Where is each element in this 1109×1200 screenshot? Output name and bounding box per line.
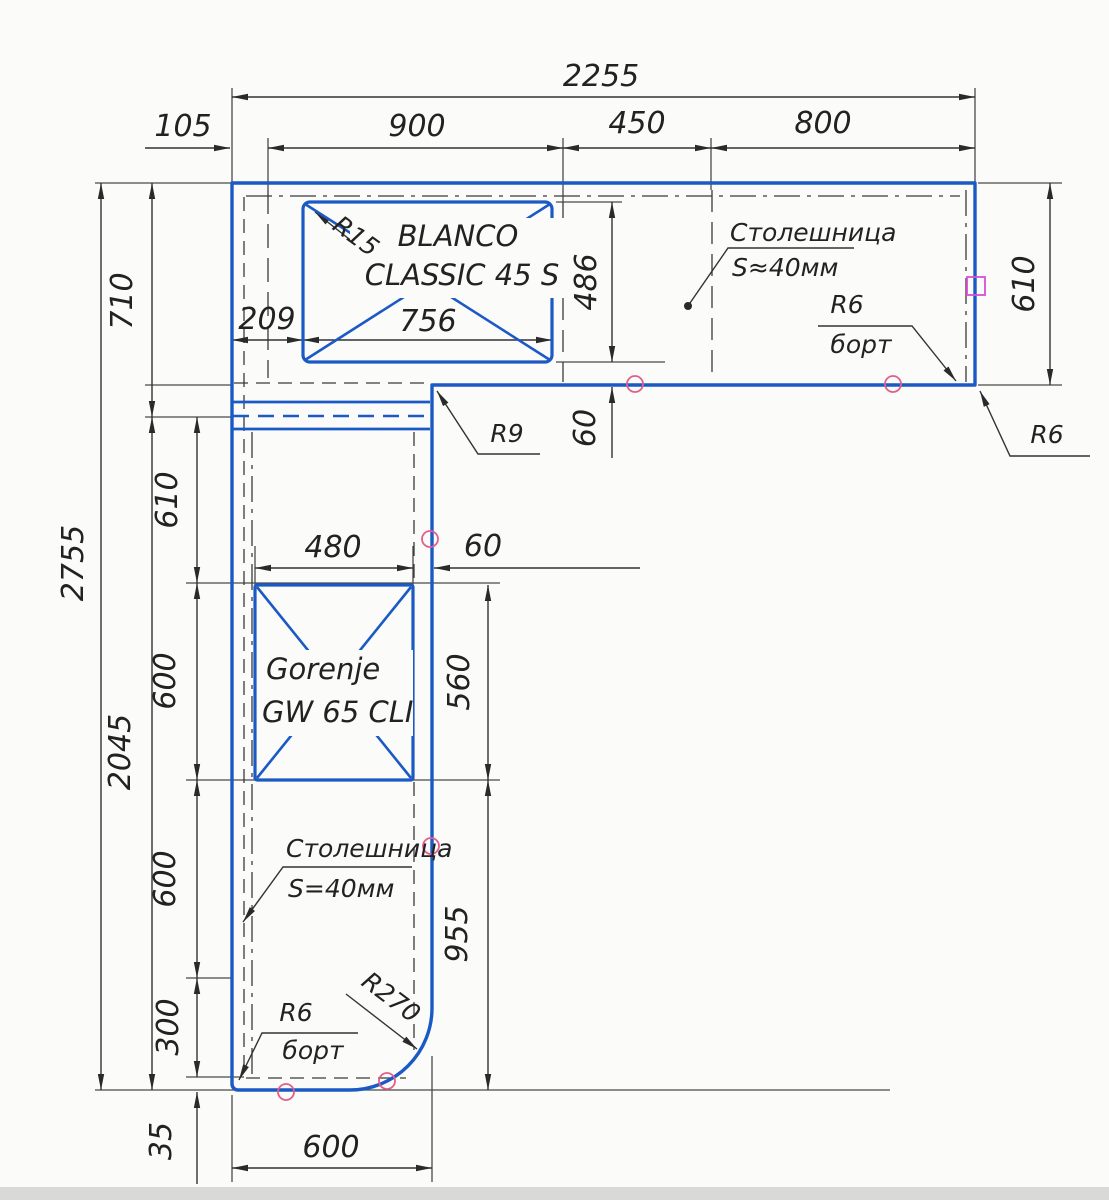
cooktop-brand: Gorenje xyxy=(266,652,380,686)
label-bort-top: борт xyxy=(830,330,893,359)
dim-right-depth: 610 xyxy=(1007,255,1042,312)
dim-cooktop-side-gap: 60 xyxy=(464,529,502,564)
label-bort-bottom: борт xyxy=(282,1036,345,1065)
dim-left-upper: 710 xyxy=(105,272,140,329)
dim-left-610: 610 xyxy=(150,471,185,528)
dim-left-600a: 600 xyxy=(148,652,183,709)
label-r6-top: R6 xyxy=(830,290,863,319)
dim-cooktop-depth: 560 xyxy=(442,653,477,710)
dim-left-600b: 600 xyxy=(148,850,183,907)
dim-left-overall: 2755 xyxy=(56,525,91,601)
label-r9: R9 xyxy=(490,419,523,448)
dim-leg-front-length: 955 xyxy=(440,905,475,962)
sink-brand: BLANCO xyxy=(398,219,519,253)
dim-top-800: 800 xyxy=(794,106,851,141)
dim-sink-width: 756 xyxy=(399,304,456,339)
scanned-drawing-page: 2255 105 900 450 800 2755 710 2045 610 6… xyxy=(0,0,1109,1200)
dim-bottom-width: 600 xyxy=(302,1130,359,1165)
dim-top-offset: 105 xyxy=(154,109,211,144)
dim-left-300: 300 xyxy=(151,998,186,1055)
scan-edge-shadow xyxy=(0,1187,1109,1200)
dim-cooktop-width: 480 xyxy=(304,530,361,565)
label-worktop-top-2: S≈40мм xyxy=(732,253,838,282)
leader-dot xyxy=(684,302,692,310)
dim-sink-depth: 486 xyxy=(569,253,604,310)
dim-sink-offset: 209 xyxy=(238,302,295,337)
dim-top-overall: 2255 xyxy=(563,59,639,94)
dim-top-900: 900 xyxy=(388,109,445,144)
dim-left-35: 35 xyxy=(144,1122,179,1160)
dim-left-lower: 2045 xyxy=(103,714,138,790)
cooktop-model: GW 65 CLI xyxy=(262,695,413,729)
countertop-technical-drawing: 2255 105 900 450 800 2755 710 2045 610 6… xyxy=(0,0,1109,1200)
dim-sink-front-gap: 60 xyxy=(568,409,603,447)
sink-model: CLASSIC 45 S xyxy=(365,258,560,292)
label-worktop-bottom-1: Столешница xyxy=(286,834,452,863)
label-r6-bottom: R6 xyxy=(279,998,312,1027)
dim-top-450: 450 xyxy=(608,106,665,141)
label-worktop-bottom-2: S=40мм xyxy=(288,874,394,903)
label-worktop-top-1: Столешница xyxy=(730,218,896,247)
label-r6-right: R6 xyxy=(1030,420,1063,449)
